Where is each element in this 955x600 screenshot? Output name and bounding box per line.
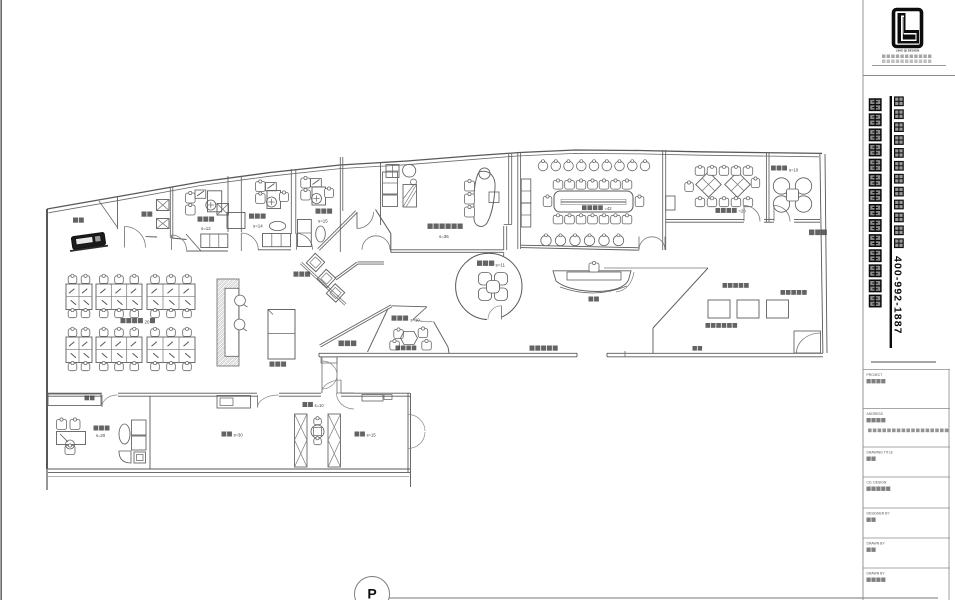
svg-text:s=15: s=15	[367, 433, 377, 438]
svg-text:P: P	[367, 586, 376, 600]
svg-text:LING QI DESIGN: LING QI DESIGN	[896, 49, 920, 53]
svg-text:s=10: s=10	[789, 168, 799, 173]
svg-text:s=12: s=12	[201, 226, 211, 231]
svg-text:DRAWN BY: DRAWN BY	[867, 542, 886, 546]
svg-text:DRAWN BY: DRAWN BY	[867, 572, 886, 576]
svg-text:s=14: s=14	[253, 224, 263, 229]
svg-text:s=10: s=10	[411, 318, 421, 323]
svg-text:s=36: s=36	[439, 234, 449, 239]
svg-text:DESIGNER BY: DESIGNER BY	[867, 512, 891, 516]
svg-text:400-992-1887: 400-992-1887	[892, 256, 904, 335]
svg-text:ADDRESS: ADDRESS	[867, 412, 884, 416]
svg-text:CD. DESIGN: CD. DESIGN	[867, 481, 887, 485]
svg-text:DRAWING TITLE: DRAWING TITLE	[867, 451, 894, 455]
svg-text:s=15: s=15	[318, 219, 328, 224]
svg-text:s=30: s=30	[234, 433, 244, 438]
svg-text:=42: =42	[605, 206, 613, 211]
svg-text:s=11: s=11	[496, 262, 506, 267]
svg-text:s=20: s=20	[96, 433, 106, 438]
svg-text:=20: =20	[739, 209, 747, 214]
svg-text:PROJECT: PROJECT	[867, 373, 883, 377]
svg-text:s=10: s=10	[315, 403, 325, 408]
svg-text:20: 20	[145, 319, 150, 324]
